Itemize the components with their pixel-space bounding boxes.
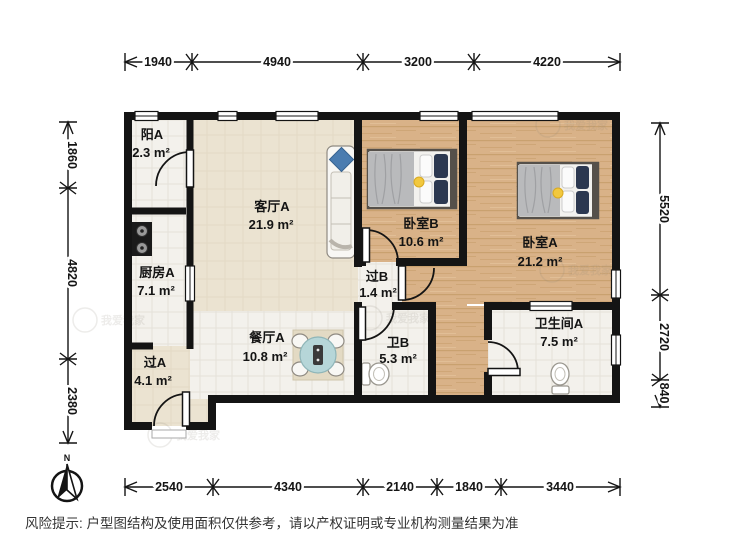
dim-bottom-1: 2540: [155, 480, 183, 494]
dim-top-3: 3200: [404, 55, 432, 69]
dim-left-3: 2380: [65, 387, 79, 415]
label-hall-b-name: 过B: [366, 269, 388, 284]
window-balcony: [135, 112, 158, 121]
label-bedroom-a-area: 21.2 m²: [518, 254, 563, 269]
pillow: [576, 166, 589, 189]
toilet-bath-a: [551, 363, 569, 394]
floorplan-page: 我爱我家 我爱我家 我爱我家 我爱我家 我爱我家: [0, 0, 729, 547]
label-bath-a-name: 卫生间A: [535, 316, 584, 331]
watermark-text: 我爱我家: [101, 313, 146, 327]
dim-bottom-5: 3440: [546, 480, 574, 494]
compass-north-label: N: [64, 453, 71, 463]
dim-bottom-2: 4340: [274, 480, 302, 494]
stove: [132, 222, 152, 256]
dim-bottom-3: 2140: [386, 480, 414, 494]
label-dining-area: 10.8 m²: [243, 349, 288, 364]
dim-right-2: 2720: [657, 323, 671, 351]
label-hall-a-name: 过A: [144, 355, 167, 370]
watermark-text: 我爱我家: [564, 118, 609, 132]
disclaimer-text: 风险提示: 户型图结构及使用面积仅供参考，请以产权证明或专业机构测量结果为准: [25, 515, 519, 531]
pillow: [434, 154, 448, 178]
toilet-bath-b: [362, 363, 389, 385]
label-balcony-name: 阳A: [141, 127, 164, 142]
pillow: [434, 180, 448, 204]
corridor-wood-floor: [436, 306, 488, 399]
dimension-left: 1860 4820 2380: [59, 122, 79, 443]
compass-needle-left: [57, 464, 67, 499]
label-kitchen-area: 7.1 m²: [137, 283, 175, 298]
label-bedroom-b-area: 10.6 m²: [399, 234, 444, 249]
label-hall-a-area: 4.1 m²: [134, 373, 172, 388]
dimension-right: 5520 2720 840: [651, 123, 671, 407]
window-living-2: [276, 112, 318, 121]
window-bath-a-interior: [530, 302, 572, 311]
label-bath-b-name: 卫B: [387, 335, 409, 350]
duck-toy: [553, 188, 563, 198]
label-balcony-area: 2.3 m²: [132, 145, 170, 160]
dim-right-1: 5520: [657, 195, 671, 223]
dim-top-2: 4940: [263, 55, 291, 69]
label-living-name: 客厅A: [254, 199, 290, 214]
pillow: [576, 191, 589, 214]
window-bath-a-right: [612, 335, 621, 365]
window-living-1: [218, 112, 237, 121]
sofa: [327, 146, 355, 258]
window-bedroom-a: [472, 112, 558, 121]
label-bedroom-b-name: 卧室B: [403, 216, 438, 231]
label-living-area: 21.9 m²: [249, 217, 294, 232]
dimension-bottom: 2540 4340 2140 1840 3440: [125, 478, 620, 496]
label-bath-a-area: 7.5 m²: [540, 334, 578, 349]
dim-bottom-4: 1840: [455, 480, 483, 494]
dim-right-3: 840: [657, 383, 671, 404]
bed-bedroom-a: [518, 163, 598, 218]
dim-left-1: 1860: [65, 141, 79, 169]
compass-needle-right: [67, 464, 77, 499]
label-dining-name: 餐厅A: [248, 330, 285, 345]
label-hall-b-area: 1.4 m²: [359, 285, 397, 300]
window-bedroom-a-right: [612, 270, 621, 298]
bed-bedroom-b: [368, 150, 456, 208]
dim-left-2: 4820: [65, 259, 79, 287]
window-bedroom-b: [420, 112, 458, 121]
kitchen-pass-window: [186, 266, 195, 301]
label-bedroom-a-name: 卧室A: [522, 235, 558, 250]
dining-table-set: [292, 330, 344, 380]
duck-toy: [414, 177, 424, 187]
dim-top-1: 1940: [144, 55, 172, 69]
watermark-text: 我爱我家: [568, 263, 613, 277]
label-kitchen-name: 厨房A: [139, 265, 175, 280]
dimension-top: 1940 4940 3200 4220: [125, 53, 620, 71]
entry-step: [152, 430, 186, 438]
label-bath-b-area: 5.3 m²: [379, 351, 417, 366]
floor-plan-drawing: 我爱我家 我爱我家 我爱我家 我爱我家 我爱我家: [0, 0, 729, 547]
dim-top-4: 4220: [533, 55, 561, 69]
compass: N: [52, 453, 82, 501]
